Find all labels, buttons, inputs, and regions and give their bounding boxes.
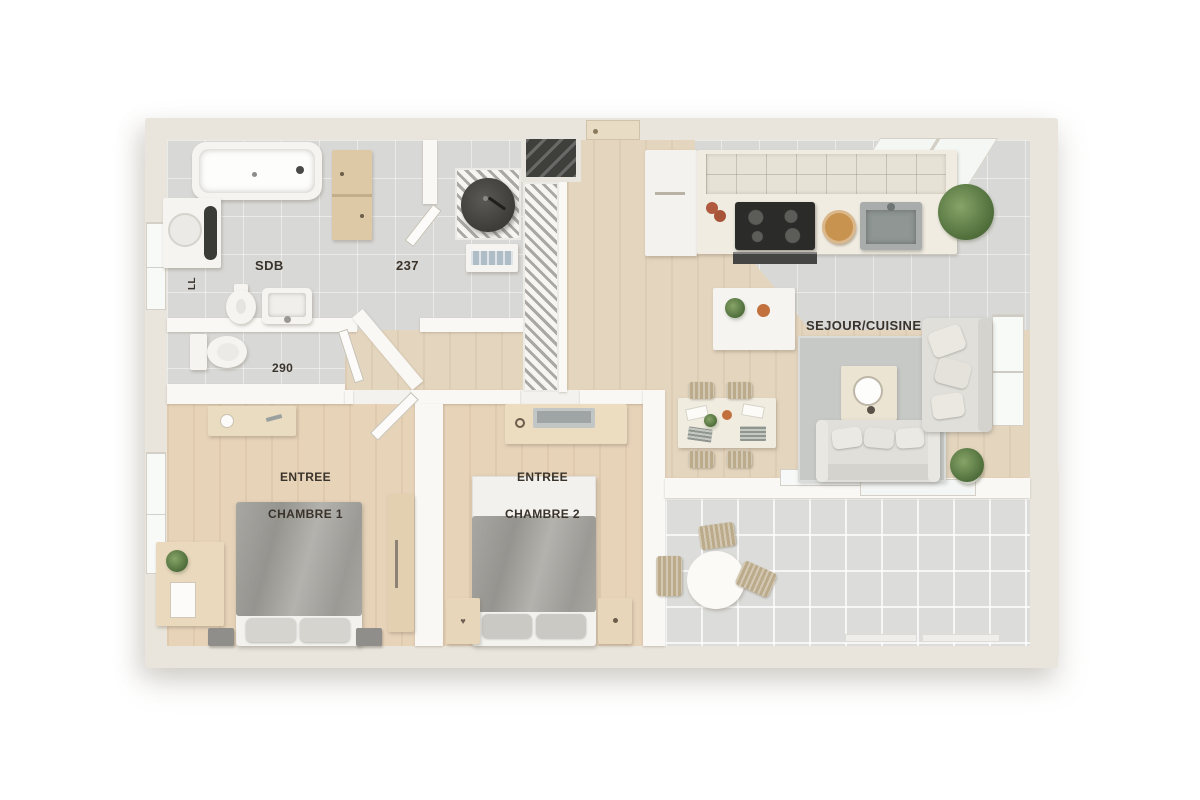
coffee-table: [841, 366, 897, 420]
island-plant: [725, 298, 745, 318]
washing-machine-label: LL: [187, 277, 198, 290]
bidet-basin: [236, 299, 246, 314]
utility-appliance: [466, 244, 518, 272]
sink-faucet: [284, 316, 291, 323]
fridge: [645, 150, 697, 256]
sink-bowl: [866, 210, 916, 244]
toilet-tank: [190, 334, 207, 370]
wall-bedrooms-north-middle: [411, 390, 520, 404]
bed1-pillow: [246, 618, 296, 642]
entry-door-handle: [593, 129, 598, 134]
island-bowl: [757, 304, 770, 317]
table-bowl: [722, 410, 732, 420]
vanity-faucet: [266, 414, 282, 422]
sofa-armrest-left: [816, 420, 828, 482]
kitchen-shelves: [706, 154, 946, 194]
vanity-bowl: [220, 414, 234, 428]
sink-basin: [268, 293, 306, 317]
laptop-screen: [537, 411, 591, 423]
bedroom1-stool: [208, 628, 234, 646]
corner-sofa-pillow-2: [933, 356, 973, 390]
sofa-pillow-3: [895, 427, 924, 449]
wall-sdb-237-divider: [423, 140, 437, 204]
cabinet-divider: [332, 194, 372, 197]
dining-table: [678, 398, 776, 448]
cooktop: [735, 202, 815, 250]
washer-drum: [204, 206, 217, 260]
bathtub-drain: [296, 166, 304, 174]
wardrobe-handle: [395, 540, 398, 588]
room-label-290: 290: [272, 361, 293, 375]
kitchen-corner-plant: [938, 184, 994, 240]
kitchen-island: [713, 288, 795, 350]
toilet-bowl: [207, 336, 247, 368]
table-plant: [704, 414, 717, 427]
bed1-pillow-2: [300, 618, 350, 642]
bed2-duvet: [472, 516, 596, 612]
room-label-sejour-cuisine: SEJOUR/CUISINE: [806, 318, 921, 333]
placemat: [687, 426, 713, 442]
corner-sofa-pillow: [927, 323, 968, 359]
bedroom1-vanity: [208, 406, 296, 436]
dining-chair-2: [726, 382, 752, 399]
cabinet-knob: [340, 172, 344, 176]
cutting-board: [822, 210, 856, 244]
wardrobe: [388, 494, 414, 632]
sofa-backrest: [820, 464, 936, 480]
dining-chair-3: [688, 451, 714, 468]
bathroom-cabinet: [332, 150, 372, 240]
fridge-handle: [655, 192, 685, 195]
sofa: [816, 420, 940, 482]
bathtub: [192, 142, 322, 200]
room-label-entree-1: ENTREE: [280, 470, 331, 484]
room-label-entree-2: ENTREE: [517, 470, 568, 484]
bedroom1-desk: [156, 542, 224, 626]
bedroom2-desk: [505, 404, 627, 444]
heart-icon: ♥: [460, 616, 465, 626]
room-label-chambre-2: CHAMBRE 2: [505, 507, 580, 521]
corner-sofa-backrest: [978, 318, 992, 432]
laptop: [533, 408, 595, 428]
entry-door: [586, 120, 640, 140]
wall-bedroom2-terrace: [643, 390, 665, 646]
desk-plant: [166, 550, 188, 572]
toilet-seat: [217, 343, 239, 361]
nightstand-knob: [613, 618, 618, 623]
kitchen-faucet: [887, 203, 895, 211]
wall-bedroom1-north-stub: [345, 390, 353, 404]
desk-tray: [170, 582, 196, 618]
salt-pepper-set: [706, 202, 718, 214]
oven: [733, 252, 817, 264]
wall-wc-south: [167, 384, 345, 404]
nightstand-left: ♥: [446, 598, 480, 644]
terrace-drain: [845, 634, 917, 642]
coffee-cup: [867, 406, 875, 414]
bathroom-sink: [262, 288, 312, 324]
window-living-east: [992, 314, 1024, 426]
dining-chair-4: [726, 451, 752, 468]
heater-valve: [483, 196, 488, 201]
floor-plan-canvas: ♥ SDB 237 290 ENTREE CHAMBRE 1 ENTREE CH…: [0, 0, 1200, 800]
bedroom1-stool-2: [356, 628, 382, 646]
appliance-panel: [471, 251, 513, 265]
washer-lid: [168, 213, 202, 247]
wall-bedroom2-north-right: [580, 390, 645, 404]
bed2-pillow: [482, 614, 532, 638]
washing-machine: [163, 198, 221, 268]
living-plant: [950, 448, 984, 482]
outer-wall-step: [1052, 470, 1059, 656]
coffee-table-tray: [853, 376, 883, 406]
room-label-237: 237: [396, 258, 419, 273]
bathtub-faucet: [252, 172, 257, 177]
water-heater: [461, 178, 515, 232]
corner-sofa: [922, 318, 992, 432]
bed-2: [472, 476, 596, 646]
kitchen-sink: [860, 202, 922, 250]
terrace-chair: [698, 522, 737, 551]
bidet-bowl: [226, 290, 256, 324]
technical-shaft: [523, 182, 559, 392]
terrace-drain-2: [922, 634, 1000, 642]
bed2-pillow-2: [536, 614, 586, 638]
desk-decor-ring: [515, 418, 525, 428]
terrace-chair-2: [656, 556, 682, 596]
heater-pipe: [488, 197, 506, 211]
bed-1: [236, 502, 362, 646]
dining-plate-2: [741, 403, 765, 419]
room-label-chambre-1: CHAMBRE 1: [268, 507, 343, 521]
nightstand-right: [598, 598, 632, 644]
room-label-sdb: SDB: [255, 258, 284, 273]
dining-chair: [688, 382, 714, 399]
sofa-pillow-2: [863, 427, 895, 450]
cabinet-knob-2: [360, 214, 364, 218]
wall-bedrooms-divider: [415, 404, 443, 646]
sofa-pillow: [831, 426, 863, 450]
skylight-vent: [521, 134, 581, 182]
corner-sofa-pillow-3: [930, 392, 965, 420]
placemat-2: [740, 426, 766, 441]
